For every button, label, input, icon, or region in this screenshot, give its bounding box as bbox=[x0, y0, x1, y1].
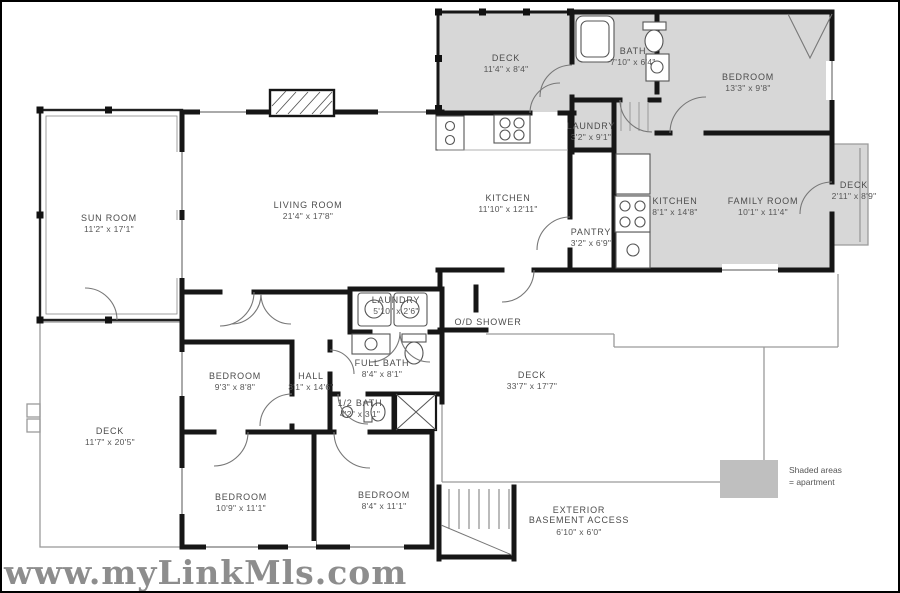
room-dims: 11'2" x 17'1" bbox=[81, 225, 137, 235]
room-label-od-shower: O/D SHOWER bbox=[454, 317, 521, 327]
room-label-basement-access: EXTERIOR BASEMENT ACCESS 6'10" x 6'0" bbox=[529, 505, 629, 537]
room-label-full-bath: FULL BATH 8'4" x 8'1" bbox=[355, 358, 410, 380]
room-label-bath-apartment: BATH 7'10" x 6'4" bbox=[610, 46, 656, 68]
hatched-box bbox=[396, 394, 436, 430]
room-label-deck-right: DECK 2'11" x 8'9" bbox=[832, 180, 877, 202]
room-dims: 9'3" x 8'8" bbox=[209, 383, 261, 393]
room-label-kitchen-main: KITCHEN 11'10" x 12'11" bbox=[478, 193, 537, 215]
room-name: KITCHEN bbox=[478, 193, 537, 203]
room-label-bedroom-bottom-left: BEDROOM 10'9" x 11'1" bbox=[215, 492, 267, 514]
room-dims: 4'2" x 3'1" bbox=[338, 410, 383, 420]
room-name: BEDROOM bbox=[722, 72, 774, 82]
room-name: O/D SHOWER bbox=[454, 317, 521, 327]
room-dims: 3'2" x 6'9" bbox=[571, 239, 611, 249]
room-dims: 2'11" x 8'9" bbox=[832, 192, 877, 202]
room-name: DECK bbox=[507, 370, 558, 380]
legend-swatch bbox=[720, 460, 778, 498]
room-dims: 21'4" x 17'8" bbox=[274, 212, 343, 222]
room-name: LAUNDRY bbox=[567, 121, 615, 131]
room-name: LIVING ROOM bbox=[274, 200, 343, 210]
floorplan-page: DECK 11'4" x 8'4" BATH 7'10" x 6'4" BEDR… bbox=[0, 0, 900, 593]
chimney bbox=[270, 90, 334, 116]
room-label-hall: HALL 3'1" x 14'6" bbox=[288, 371, 334, 393]
room-name: DECK bbox=[832, 180, 877, 190]
room-dims: 6'10" x 6'0" bbox=[529, 527, 629, 537]
room-dims: 8'4" x 11'1" bbox=[358, 502, 410, 512]
room-name: FAMILY ROOM bbox=[728, 196, 798, 206]
room-label-family-room: FAMILY ROOM 10'1" x 11'4" bbox=[728, 196, 798, 218]
legend: Shaded areas = apartment bbox=[789, 465, 842, 489]
room-name: DECK bbox=[484, 53, 529, 63]
room-label-sun-room: SUN ROOM 11'2" x 17'1" bbox=[81, 213, 137, 235]
room-label-pantry: PANTRY 3'2" x 6'9" bbox=[571, 227, 611, 249]
legend-line2: = apartment bbox=[789, 477, 842, 489]
room-name: PANTRY bbox=[571, 227, 611, 237]
room-label-laundry-apartment: LAUNDRY 3'2" x 9'1" bbox=[567, 121, 615, 143]
room-label-half-bath: 1/2 BATH 4'2" x 3'1" bbox=[338, 398, 383, 420]
room-dims: 11'10" x 12'11" bbox=[478, 205, 537, 215]
room-dims: 10'9" x 11'1" bbox=[215, 504, 267, 514]
room-dims: 10'1" x 11'4" bbox=[728, 208, 798, 218]
room-label-bedroom-middle: BEDROOM 9'3" x 8'8" bbox=[209, 371, 261, 393]
room-name: BATH bbox=[610, 46, 656, 56]
room-name: DECK bbox=[85, 426, 135, 436]
room-label-kitchen-apartment: KITCHEN 8'1" x 14'8" bbox=[652, 196, 698, 218]
room-label-living-room: LIVING ROOM 21'4" x 17'8" bbox=[274, 200, 343, 222]
room-label-laundry-main: LAUNDRY 5'10" x 2'6" bbox=[372, 295, 420, 317]
room-name: LAUNDRY bbox=[372, 295, 420, 305]
room-dims: 11'7" x 20'5" bbox=[85, 438, 135, 448]
room-label-deck-main: DECK 33'7" x 17'7" bbox=[507, 370, 558, 392]
legend-line1: Shaded areas bbox=[789, 465, 842, 477]
room-name: HALL bbox=[288, 371, 334, 381]
room-label-bedroom-apartment: BEDROOM 13'3" x 9'8" bbox=[722, 72, 774, 94]
room-dims: 3'2" x 9'1" bbox=[567, 133, 615, 143]
room-name: KITCHEN bbox=[652, 196, 698, 206]
room-name: BEDROOM bbox=[209, 371, 261, 381]
room-name-line1: EXTERIOR bbox=[529, 505, 629, 515]
room-label-deck-apartment: DECK 11'4" x 8'4" bbox=[484, 53, 529, 75]
room-name: 1/2 BATH bbox=[338, 398, 383, 408]
room-dims: 3'1" x 14'6" bbox=[288, 383, 334, 393]
room-dims: 13'3" x 9'8" bbox=[722, 84, 774, 94]
room-dims: 8'4" x 8'1" bbox=[355, 370, 410, 380]
room-dims: 8'1" x 14'8" bbox=[652, 208, 698, 218]
room-name-line2: BASEMENT ACCESS bbox=[529, 515, 629, 525]
room-label-deck-left: DECK 11'7" x 20'5" bbox=[85, 426, 135, 448]
room-dims: 33'7" x 17'7" bbox=[507, 382, 558, 392]
room-dims: 11'4" x 8'4" bbox=[484, 65, 529, 75]
room-name: FULL BATH bbox=[355, 358, 410, 368]
room-name: BEDROOM bbox=[215, 492, 267, 502]
room-dims: 5'10" x 2'6" bbox=[372, 307, 420, 317]
room-name: BEDROOM bbox=[358, 490, 410, 500]
room-name: SUN ROOM bbox=[81, 213, 137, 223]
room-label-bedroom-bottom-mid: BEDROOM 8'4" x 11'1" bbox=[358, 490, 410, 512]
watermark: www.myLinkMls.com bbox=[4, 553, 407, 592]
room-dims: 7'10" x 6'4" bbox=[610, 58, 656, 68]
